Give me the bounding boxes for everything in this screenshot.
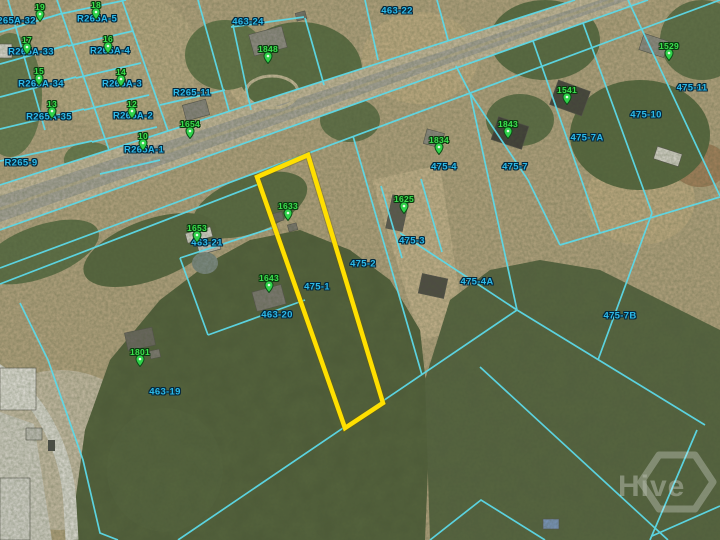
map-pin-icon[interactable]: [117, 74, 126, 92]
parcel-label: 475-7B: [604, 311, 637, 321]
parcel-label: R265-11: [173, 88, 211, 98]
map-pin-icon[interactable]: [400, 201, 409, 219]
parcel-label: 463-24: [232, 17, 263, 27]
map-pin-icon[interactable]: [23, 42, 32, 60]
map-pin-icon[interactable]: [136, 354, 145, 372]
map-pin-icon[interactable]: [284, 208, 293, 226]
map-pin-icon[interactable]: [504, 126, 513, 144]
map-pin-icon[interactable]: [265, 280, 274, 298]
map-pin-icon[interactable]: [92, 7, 101, 25]
map-pin-icon[interactable]: [264, 51, 273, 69]
parcel-label: 475-11: [677, 83, 708, 93]
map-pin-icon[interactable]: [104, 41, 113, 59]
map-pin-icon[interactable]: [186, 126, 195, 144]
parcel-label: R265A-32: [0, 16, 36, 26]
parcel-label: 463-22: [381, 6, 412, 16]
map-pin-icon[interactable]: [36, 9, 45, 27]
parcel-label: 475-10: [630, 110, 661, 120]
map-pin-icon[interactable]: [665, 48, 674, 66]
parcel-label: 475-4A: [461, 277, 494, 287]
watermark-text: Hive: [618, 470, 685, 504]
parcel-label: 475-1: [304, 282, 330, 292]
map-pin-icon[interactable]: [35, 73, 44, 91]
parcel-label: 463-19: [149, 387, 180, 397]
map-pin-icon[interactable]: [128, 106, 137, 124]
map-pin-icon[interactable]: [563, 92, 572, 110]
map-pin-icon[interactable]: [193, 230, 202, 248]
parcel-label: 475-3: [399, 236, 425, 246]
hive-watermark: Hive: [612, 450, 720, 525]
parcel-label: 475-2: [350, 259, 376, 269]
parcel-label: 475-4: [431, 162, 457, 172]
parcel-label: R265-9: [5, 158, 38, 168]
parcel-label: 475-7A: [571, 133, 604, 143]
parcel-label: 475-7: [502, 162, 528, 172]
aerial-parcel-map[interactable]: R265A-32R265A-5R265A-33R265A-4R265A-34R2…: [0, 0, 720, 540]
map-pin-icon[interactable]: [48, 106, 57, 124]
parcel-label: 463-20: [261, 310, 292, 320]
map-pin-icon[interactable]: [435, 142, 444, 160]
map-pin-icon[interactable]: [139, 138, 148, 156]
